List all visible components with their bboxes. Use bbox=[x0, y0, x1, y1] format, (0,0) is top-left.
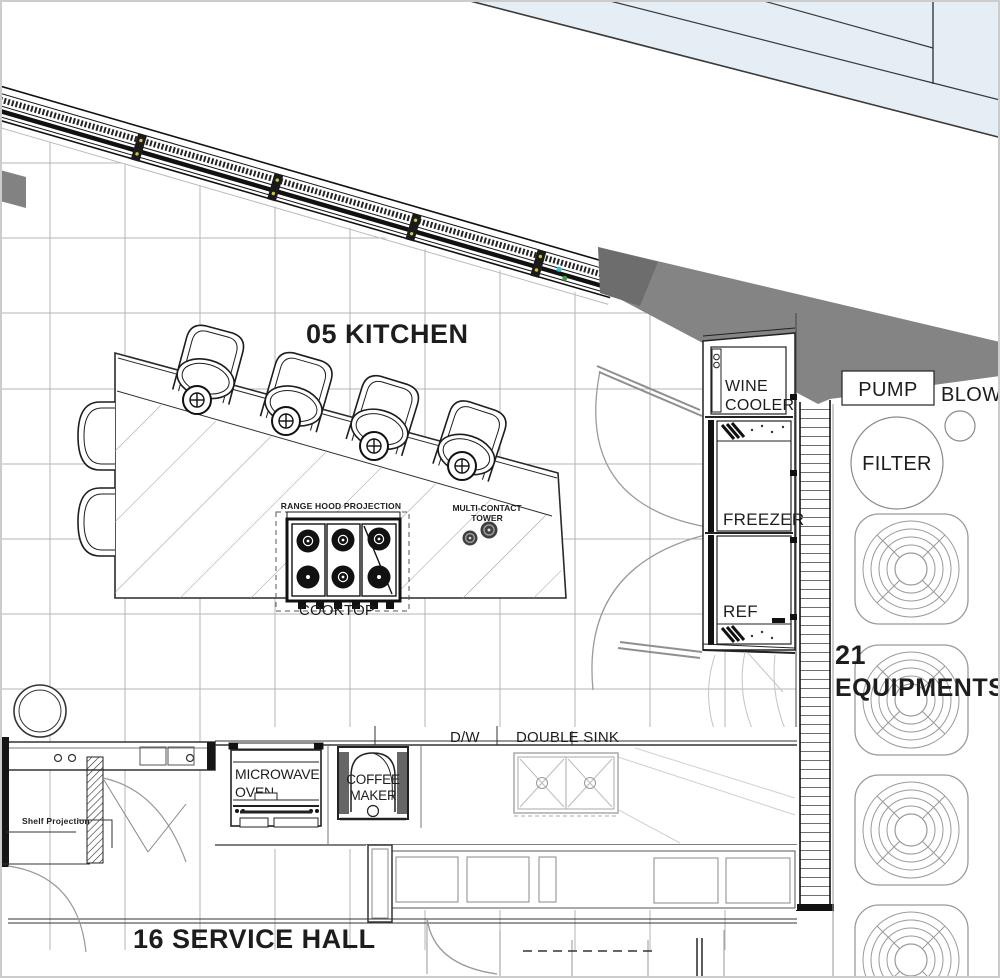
wall-ladder-hatch bbox=[800, 404, 830, 905]
hatched-wall-column bbox=[87, 757, 103, 863]
fan-unit bbox=[855, 905, 968, 978]
fan-unit bbox=[855, 775, 968, 885]
cooktop bbox=[287, 512, 400, 609]
wine-cooler-label-line2: COOLER bbox=[725, 397, 794, 414]
multi-contact-label-line2: TOWER bbox=[471, 513, 502, 523]
wine-cooler: WINE COOLER bbox=[711, 347, 794, 414]
freezer-label: FREEZER bbox=[723, 510, 804, 529]
dishwasher-label: D/W bbox=[450, 729, 480, 746]
multi-contact-label-line1: MULTI-CONTACT bbox=[452, 503, 522, 513]
shelf-projection-label: Shelf Projection bbox=[22, 816, 90, 826]
lounge-chair bbox=[78, 488, 115, 556]
ref-label: REF bbox=[723, 602, 758, 621]
kitchen-counter-band: MICROWAVE OVEN COFFEE MAKER D/W DOUBLE S… bbox=[215, 726, 797, 849]
microwave-label-line1: MICROWAVE bbox=[235, 766, 320, 782]
coffee-label-line2: MAKER bbox=[349, 788, 396, 803]
double-sink-label: DOUBLE SINK bbox=[516, 729, 619, 746]
fan-unit bbox=[855, 514, 968, 624]
pump-label: PUMP bbox=[858, 379, 917, 401]
counter-plate-symbol bbox=[183, 386, 211, 414]
counter-plate-symbol bbox=[448, 452, 476, 480]
floor-plan-drawing: RANGE HOOD PROJECTION COOKTOP MULTI-CONT… bbox=[0, 0, 1000, 978]
ref-door-edge bbox=[708, 535, 714, 645]
counter-plate-symbol bbox=[272, 407, 300, 435]
double-sink bbox=[514, 753, 618, 816]
coffee-label-line1: COFFEE bbox=[346, 772, 400, 787]
lounge-chair bbox=[78, 402, 115, 470]
wine-cooler-label-line1: WINE bbox=[725, 378, 768, 395]
room-label-kitchen: 05 KITCHEN bbox=[306, 319, 469, 349]
filter-label: FILTER bbox=[862, 453, 932, 475]
room-label-service-hall: 16 SERVICE HALL bbox=[133, 924, 376, 954]
freezer-door-edge bbox=[708, 420, 714, 532]
cooktop-label: COOKTOP bbox=[299, 602, 375, 619]
stock-pot bbox=[14, 685, 66, 737]
coffee-maker: COFFEE MAKER bbox=[338, 747, 408, 819]
microwave-oven: MICROWAVE OVEN bbox=[229, 743, 323, 827]
equipments-count: 21 bbox=[835, 640, 866, 670]
counter-plate-symbol bbox=[360, 432, 388, 460]
floor-plan-canvas: RANGE HOOD PROJECTION COOKTOP MULTI-CONT… bbox=[0, 0, 1000, 978]
range-hood-label: RANGE HOOD PROJECTION bbox=[281, 501, 401, 511]
blower-circle bbox=[945, 411, 975, 441]
blower-label: BLOW bbox=[941, 384, 1000, 406]
service-counter-left bbox=[0, 742, 215, 770]
refrigerator: REF bbox=[717, 536, 791, 644]
equipments-label: EQUIPMENTS bbox=[835, 674, 1000, 702]
tall-appliance-column: WINE COOLER FREEZER REF bbox=[703, 328, 804, 653]
